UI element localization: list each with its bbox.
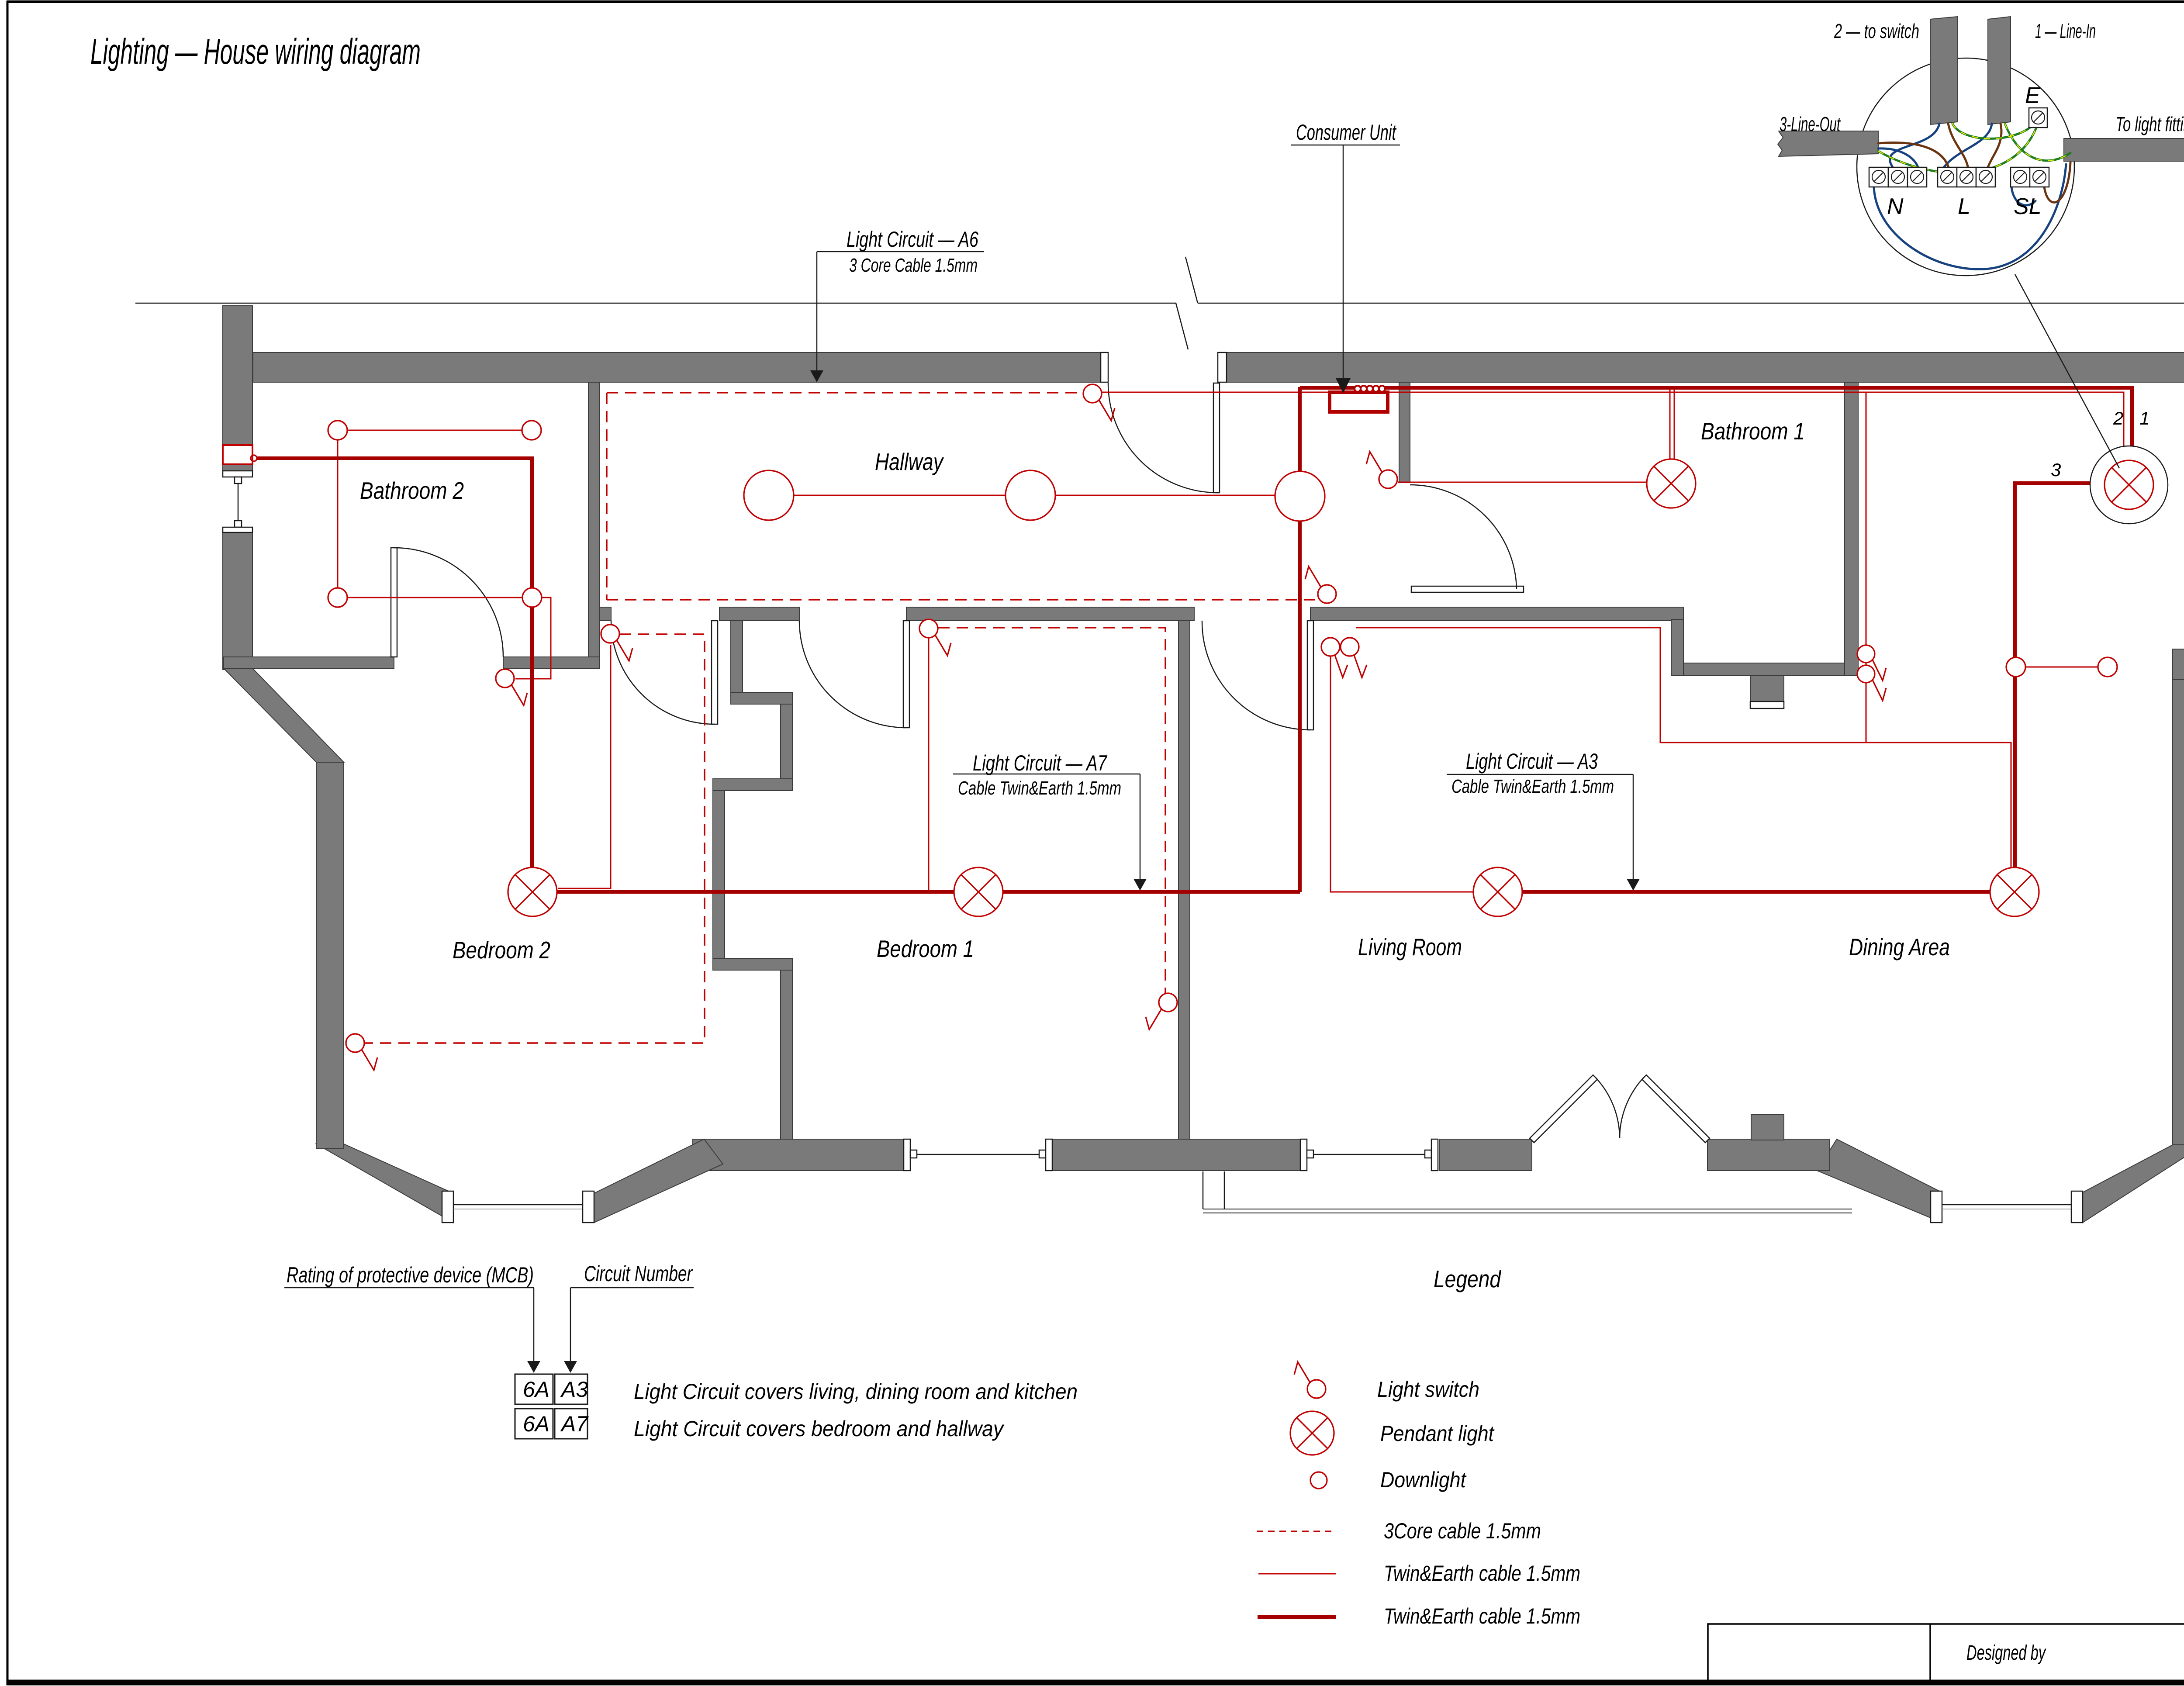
svg-text:Designed by: Designed by [1966, 1641, 2046, 1665]
svg-text:Light Circuit — A7: Light Circuit — A7 [973, 751, 1108, 775]
svg-text:Pendant light: Pendant light [1380, 1421, 1495, 1446]
svg-text:Rating of protective device (M: Rating of protective device (MCB) [287, 1263, 534, 1287]
svg-text:Hallway: Hallway [875, 448, 944, 475]
svg-text:Light switch: Light switch [1377, 1377, 1479, 1402]
svg-text:6A: 6A [523, 1377, 549, 1402]
svg-text:Bathroom 2: Bathroom 2 [360, 477, 464, 504]
svg-text:Bathroom 1: Bathroom 1 [1701, 418, 1805, 445]
svg-text:SL: SL [2014, 194, 2042, 219]
svg-text:E: E [2025, 83, 2041, 108]
svg-text:Legend: Legend [1434, 1265, 1502, 1292]
svg-text:Light Circuit — A6: Light Circuit — A6 [847, 227, 978, 252]
svg-text:To light fitting: To light fitting [2115, 113, 2184, 135]
svg-text:Twin&Earth cable 1.5mm: Twin&Earth cable 1.5mm [1384, 1604, 1580, 1628]
svg-text:Bedroom 2: Bedroom 2 [453, 936, 550, 964]
svg-text:Cable Twin&Earth 1.5mm: Cable Twin&Earth 1.5mm [1451, 776, 1614, 797]
svg-text:Cable Twin&Earth 1.5mm: Cable Twin&Earth 1.5mm [958, 777, 1121, 799]
svg-text:Bedroom 1: Bedroom 1 [877, 935, 974, 962]
svg-text:3-Line-Out: 3-Line-Out [1780, 113, 1841, 135]
svg-text:Living Room: Living Room [1358, 933, 1462, 960]
svg-text:Circuit Number: Circuit Number [584, 1261, 693, 1286]
svg-text:N: N [1887, 194, 1904, 219]
svg-text:Light Circuit covers living, d: Light Circuit covers living, dining room… [634, 1379, 1078, 1404]
svg-text:Downlight: Downlight [1380, 1468, 1467, 1492]
svg-text:Dining Area: Dining Area [1849, 933, 1950, 960]
svg-text:A3: A3 [560, 1377, 588, 1402]
svg-text:2 — to switch: 2 — to switch [1834, 20, 1919, 42]
svg-text:3 Core Cable 1.5mm: 3 Core Cable 1.5mm [849, 255, 978, 276]
svg-text:6A: 6A [523, 1412, 549, 1436]
svg-text:1: 1 [2139, 408, 2149, 428]
svg-text:Consumer Unit: Consumer Unit [1296, 120, 1396, 145]
svg-text:A7: A7 [560, 1412, 589, 1436]
svg-text:2: 2 [2113, 408, 2123, 428]
svg-text:Lighting — House wiring diagra: Lighting — House wiring diagram [90, 32, 421, 72]
svg-text:L: L [1958, 194, 1970, 219]
svg-text:Light Circuit covers bedroom a: Light Circuit covers bedroom and hallway [634, 1417, 1005, 1441]
svg-text:Twin&Earth cable 1.5mm: Twin&Earth cable 1.5mm [1384, 1561, 1580, 1586]
svg-text:3: 3 [2051, 460, 2061, 480]
svg-text:3Core cable 1.5mm: 3Core cable 1.5mm [1384, 1519, 1541, 1543]
svg-text:Light Circuit — A3: Light Circuit — A3 [1466, 749, 1598, 774]
svg-text:1 — Line-In: 1 — Line-In [2035, 20, 2096, 42]
